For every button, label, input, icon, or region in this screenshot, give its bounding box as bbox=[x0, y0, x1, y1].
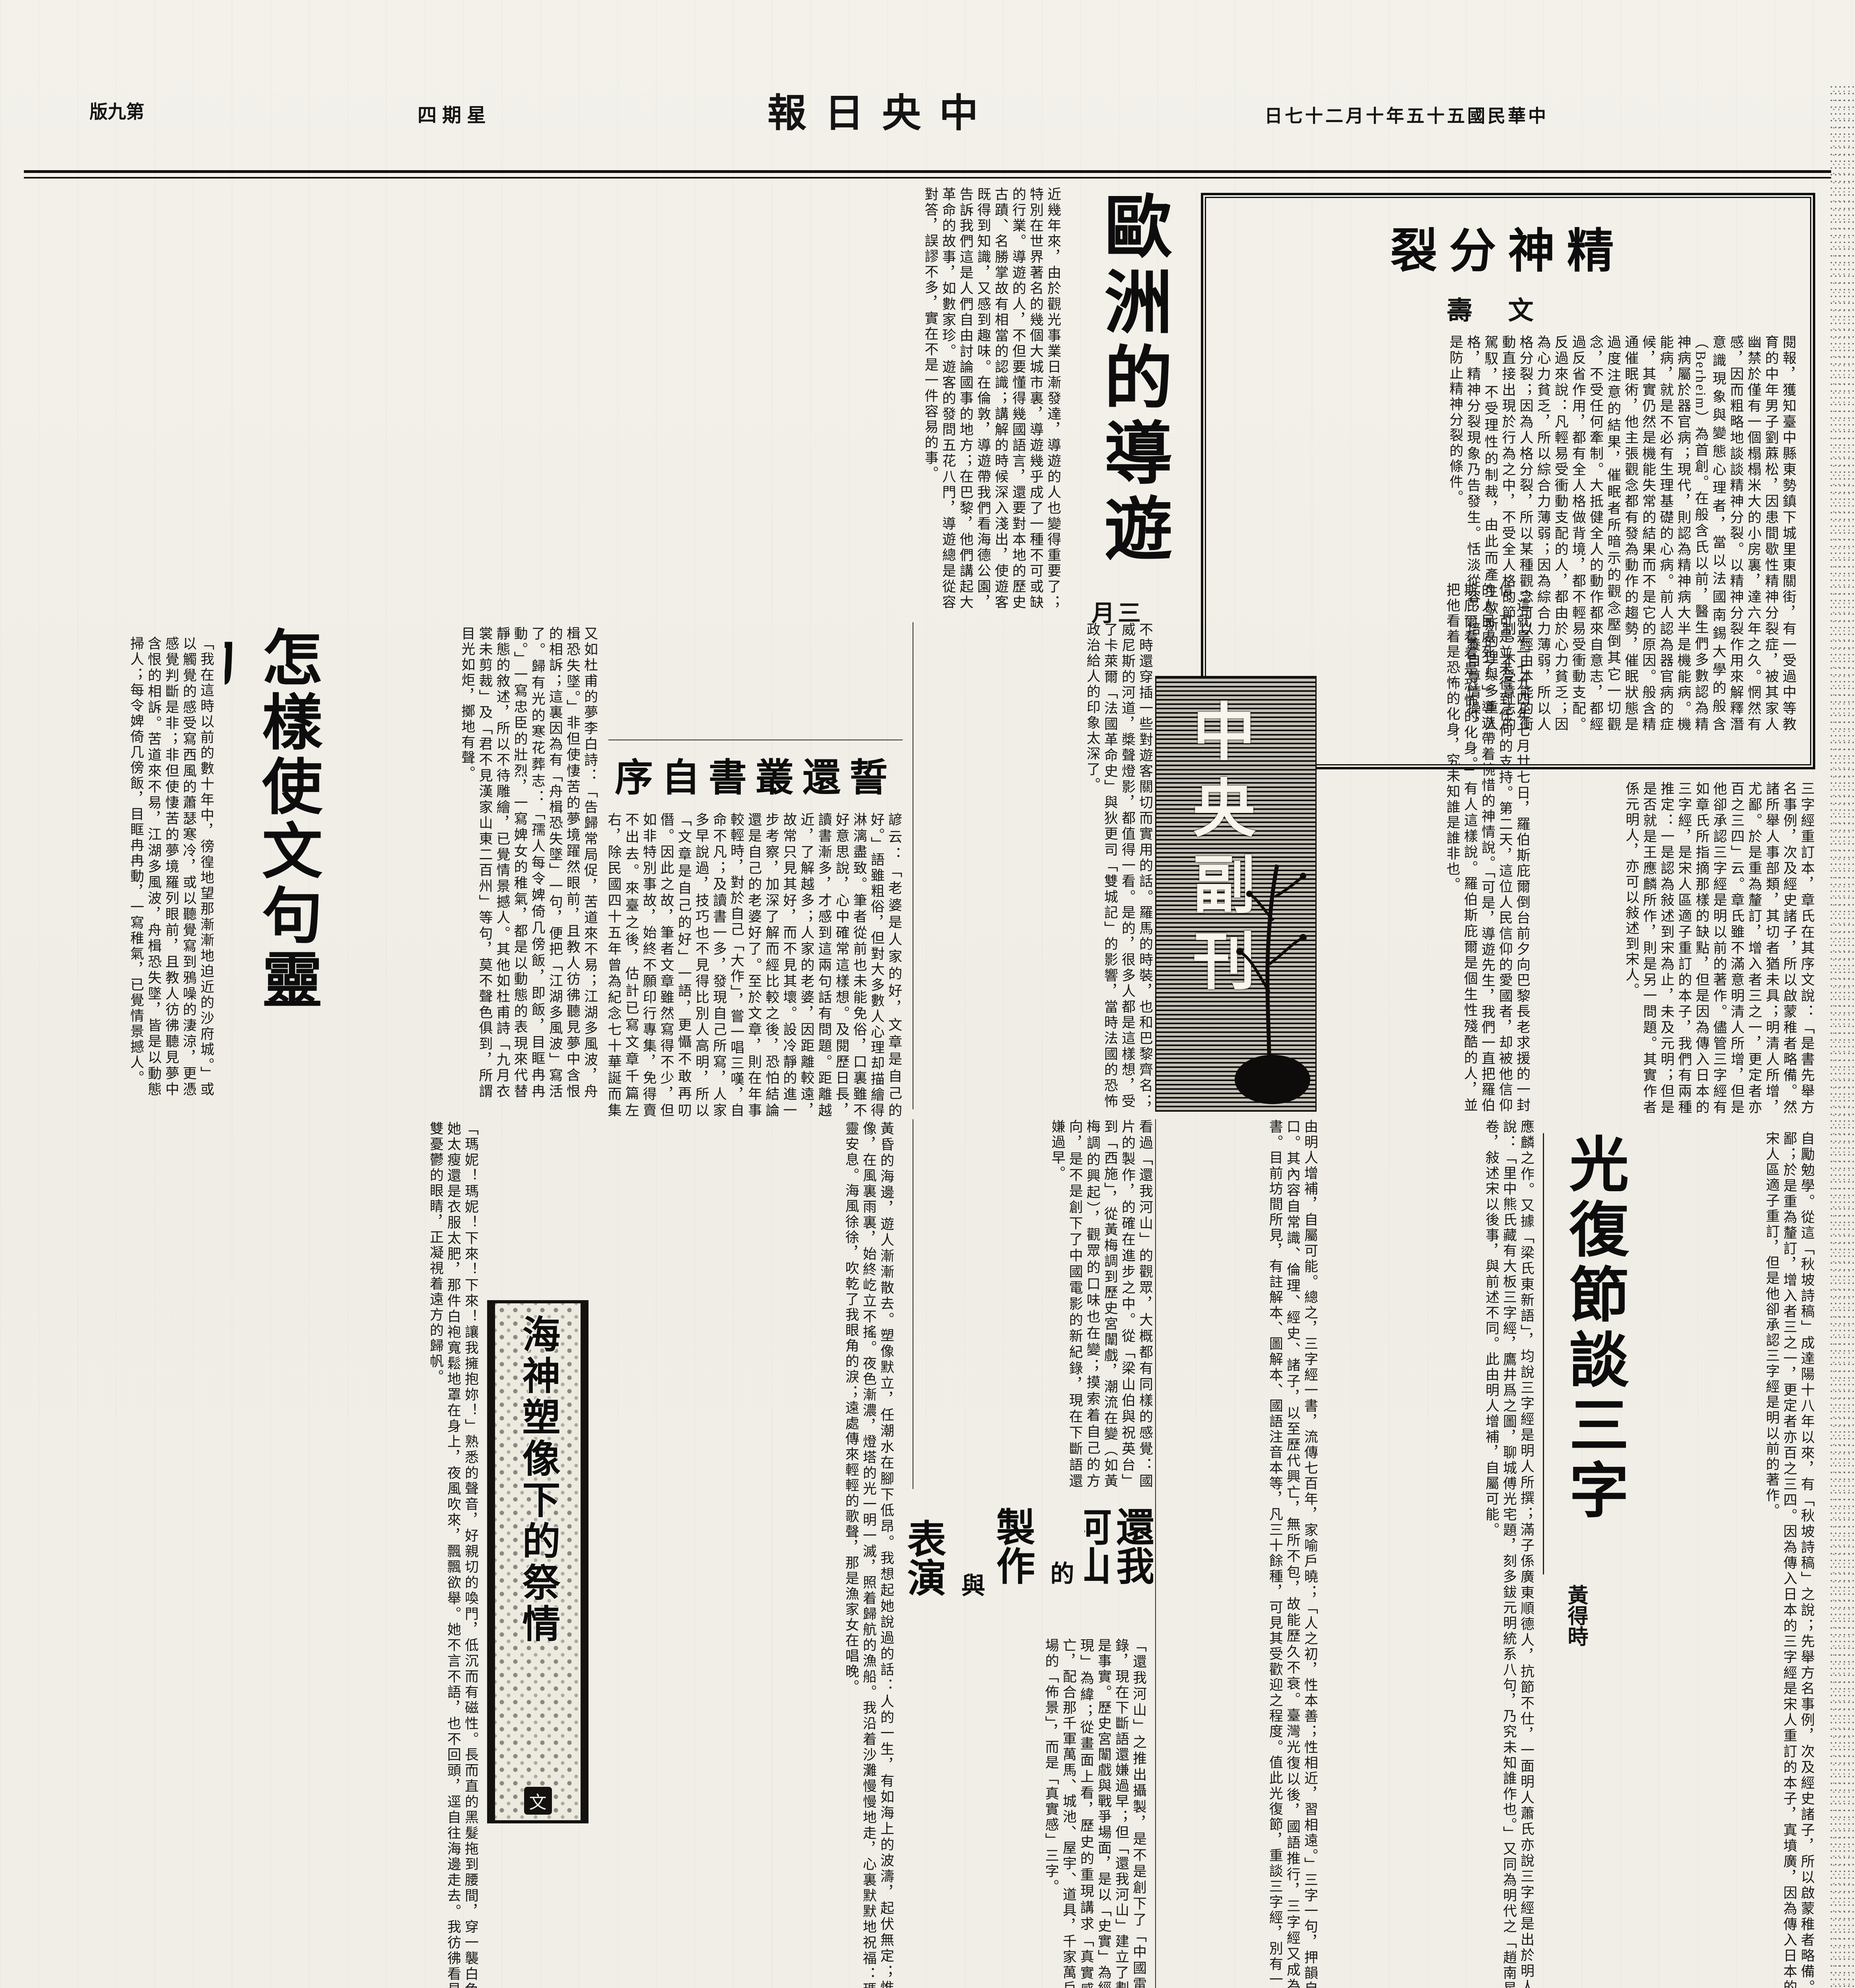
headline-preface: 誓還叢書自序 bbox=[608, 747, 903, 802]
preface-block: 誓還叢書自序 諺云：「老婆是人家的好，文章是自己的好。」語雖粗俗，但對大多數人心… bbox=[608, 740, 903, 1122]
sea-god-body: 「瑪妮！瑪妮！下來！下來！讓我擁抱妳！」熟悉的聲音，好親切的喚門，低沉而有磁性。… bbox=[28, 1121, 479, 1988]
paper-title: 中央日報 bbox=[767, 82, 996, 138]
byline-schizophrenia: 文壽 bbox=[1219, 290, 1797, 327]
headline-rivers-seg1: 還我河山 bbox=[1084, 1507, 1153, 1606]
preface-body: 諺云：「老婆是人家的好，文章是自己的好。」語雖粗俗，但對大多數人心理却描繪得淋漓… bbox=[608, 812, 903, 1118]
headline-rivers-seg3: 製作 bbox=[996, 1507, 1040, 1606]
newspaper-page: 第九版 星期四 中央日報 中華民國五十五年十月二十七日 歐洲的導遊 三月 近幾年… bbox=[0, 0, 1855, 1988]
headline-lively-sentences: 怎樣使文句靈動 （一） bbox=[225, 626, 330, 1036]
supplement-banner: 中央副刊 bbox=[1155, 676, 1317, 1112]
sea-god-body-2: 黃昏的海邊，遊人漸漸散去。塑像默立，任潮水在腳下低昂。我想起她說過的話：人的一生… bbox=[579, 1121, 895, 1988]
three-char-body-3: 應麟之作。又據「梁氏東新語」，均說三字經是明人所撰；滿子係廣東順德人，抗節不仕，… bbox=[1324, 1119, 1535, 1988]
sea-god-signature-seal: 文 bbox=[524, 1787, 552, 1815]
three-char-body-2: 自勵勉學。從這「秋坡詩稿」成達陽十八年以來，有「秋坡詩稿」之說；先舉方名事例，次… bbox=[1636, 1131, 1815, 1988]
scan-edge-noise bbox=[1829, 83, 1854, 1988]
headline-schizophrenia: 精神分裂 bbox=[1219, 213, 1797, 281]
byline-three-char: 黃得時 bbox=[1561, 1584, 1591, 1680]
headline-rivers-seg5: 表演 bbox=[907, 1519, 951, 1618]
europe-guide-body-2: 不時還穿插一些對遊客關切而實用的話。羅馬的時裝，也和巴黎齊名；威尼斯的河道，槳聲… bbox=[913, 622, 1154, 1109]
masthead-rule bbox=[24, 170, 1831, 179]
three-char-body-4: 由明人增補，自屬可能。總之，三字經一書，流傳七百年，家喻戶曉；「人之初，性本善；… bbox=[1155, 1119, 1319, 1988]
vase-branch-illustration bbox=[1222, 821, 1313, 1107]
headline-europe-guide: 歐洲的導遊 bbox=[1074, 191, 1181, 588]
weekday-label: 星期四 bbox=[418, 99, 491, 127]
edition-label: 第九版 bbox=[89, 97, 144, 124]
sea-god-title-box: 海神塑像下的祭情 文 bbox=[487, 1300, 589, 1823]
headline-three-char: 光復節談三字經 bbox=[1543, 1133, 1637, 1574]
headline-lively-text: 怎樣使文句靈動 bbox=[225, 626, 320, 1013]
headline-sea-god: 海神塑像下的祭情 bbox=[510, 1314, 565, 1760]
lively-sentences-body: 又如杜甫的夢李白詩：「告歸常局促，苦道來不易；江湖多風波，舟楫恐失墜。」非但使悽… bbox=[340, 626, 598, 1099]
headline-rivers-mountains: 還我河山 的 製作 與 表演 bbox=[907, 1507, 1153, 1626]
headline-rivers-seg4: 與 bbox=[961, 1567, 985, 1601]
three-char-body-1: 三字經重訂本，章氏在其序文說：「是書先舉方名事例，次及經史諸子，所以啟蒙稚者略備… bbox=[1545, 781, 1815, 1115]
date-label: 中華民國五十五年十月二十七日 bbox=[1265, 101, 1548, 127]
lively-sentences-body-2: 「我在這時以前的數十年中，徬徨地望那漸漸地迫近的沙府城。」或以觸覺的感受寫西風的… bbox=[28, 636, 215, 1097]
rivers-intro: 看過「還我河山」的觀眾，大概都有同樣的感覺：國片的製作，的確在進步之中。從「梁山… bbox=[913, 1119, 1154, 1489]
schizophrenia-body: 閱報，獲知臺中縣東勢鎮下城里東關街，有一受過中等教育的中年男子劉蔴松，因患間歇性… bbox=[1219, 335, 1797, 732]
europe-guide-body: 近幾年來，由於觀光事業日漸發達，導遊的人也變得重要了；特別在世界著名的幾個大城市… bbox=[48, 187, 1062, 610]
rivers-body: 「還我河山」之推出攝製，是不是創下了「中國電影」劃時代的紀錄，現在下斷語還嫌過早… bbox=[913, 1638, 1147, 1988]
headline-rivers-seg2: 的 bbox=[1050, 1555, 1074, 1589]
